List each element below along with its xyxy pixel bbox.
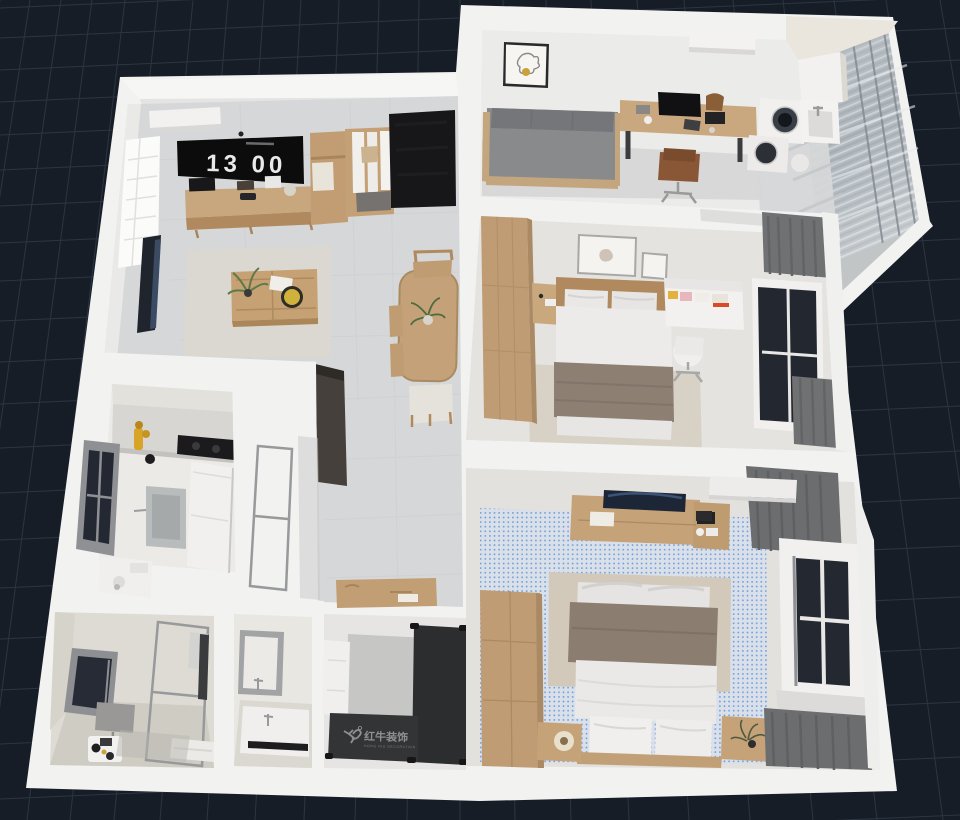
svg-text:13 00: 13 00 (206, 150, 287, 179)
svg-text:红牛装饰: 红牛装饰 (364, 729, 408, 744)
